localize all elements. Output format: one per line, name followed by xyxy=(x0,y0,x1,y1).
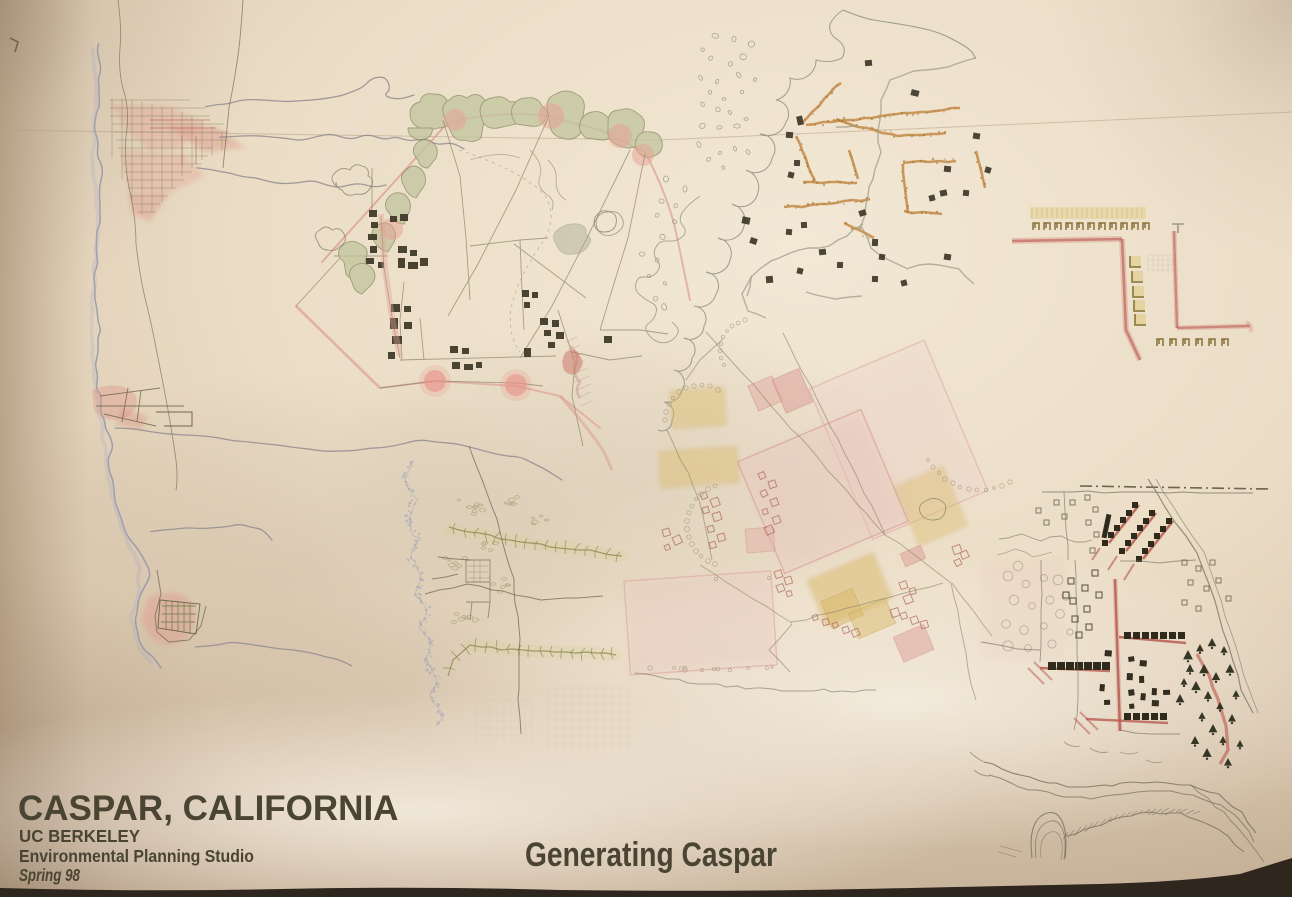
svg-text:Generating Caspar: Generating Caspar xyxy=(525,836,777,874)
svg-text:UC BERKELEY: UC BERKELEY xyxy=(19,826,140,846)
svg-text:Environmental Planning Studio: Environmental Planning Studio xyxy=(19,846,254,866)
svg-text:CASPAR, CALIFORNIA: CASPAR, CALIFORNIA xyxy=(18,789,398,828)
svg-text:Spring 98: Spring 98 xyxy=(19,865,80,885)
